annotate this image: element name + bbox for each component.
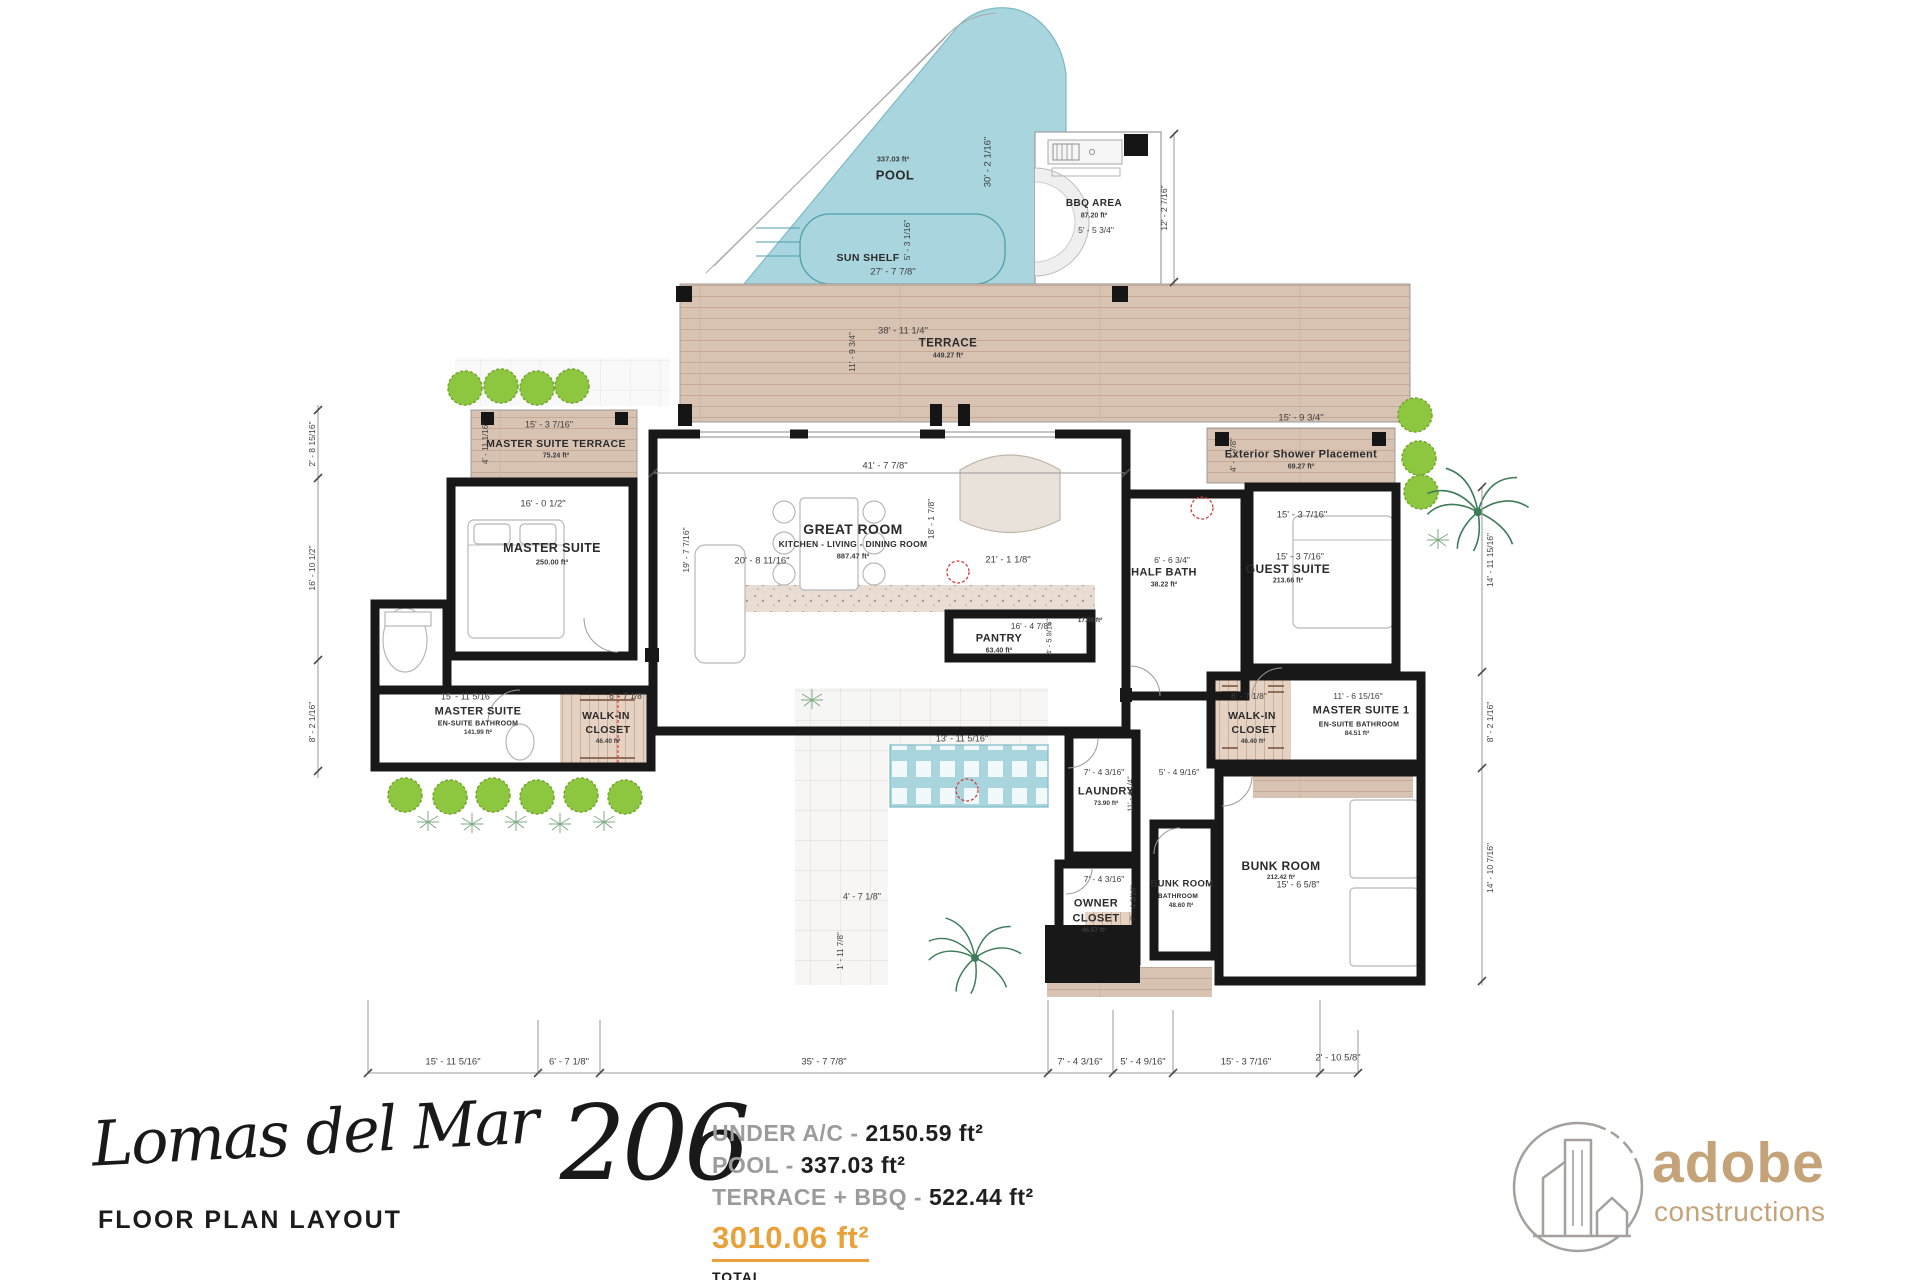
ms1-bath-label: MASTER SUITE 1 (1313, 706, 1410, 717)
project-title: Lomas del Mar 206 (92, 1096, 746, 1187)
dim-bunk-width: 15' - 6 5/8" (1277, 881, 1320, 890)
wic-right-label-1: WALK-IN (1228, 711, 1276, 722)
stat-pool-value: 337.03 ft² (801, 1152, 906, 1178)
dim-bbq-width: 5' - 5 3/4" (1078, 226, 1114, 235)
wic-right-label-2: CLOSET (1232, 725, 1277, 736)
dim-ext-shower-width: 15' - 9 3/4" (1278, 413, 1323, 423)
dim-left-top: 2' - 8 15/16" (308, 421, 317, 466)
terrace-label: TERRACE (919, 338, 977, 350)
stat-under-ac: UNDER A/C - 2150.59 ft² (712, 1120, 1034, 1147)
stat-terrace-bbq-value: 522.44 ft² (929, 1184, 1034, 1210)
dim-great-room-width: 41' - 7 7/8" (862, 461, 907, 471)
bunk-bath-area-label: 48.60 ft² (1169, 903, 1194, 910)
dim-master-suite-width: 16' - 0 1/2" (520, 499, 565, 509)
master-suite-label: MASTER SUITE (503, 542, 601, 555)
bunk-bath-label: BUNK ROOM (1150, 879, 1213, 889)
dim-guest-mid: 15' - 3 7/16" (1276, 553, 1324, 562)
owner-closet-label-2: CLOSET (1072, 914, 1119, 925)
pool-label: POOL (876, 169, 914, 182)
brand-logo-icon (1503, 1112, 1653, 1262)
brand-tagline: constructions (1654, 1196, 1825, 1228)
dim-ms1-bath-width: 11' - 6 15/16" (1333, 692, 1382, 701)
ms1-bath-area-label: 84.51 ft² (1345, 731, 1370, 738)
wic-left-label-2: CLOSET (586, 725, 631, 736)
stat-under-ac-value: 2150.59 ft² (865, 1120, 983, 1146)
stat-total-value: 3010.06 ft² (712, 1220, 869, 1262)
guest-suite-area-label: 213.66 ft² (1273, 578, 1303, 585)
dim-great-room-mid: 18' - 1 7/8" (927, 499, 936, 540)
dim-courtyard-width: 13' - 11 5/16" (936, 735, 988, 744)
dim-laundry-width: 7' - 4 3/16" (1084, 768, 1125, 777)
dim-guest-top: 15' - 3 7/16" (1277, 510, 1328, 520)
brand-name: adobe (1652, 1130, 1825, 1196)
dim-wic-left-width: 6' - 7 1/8" (609, 692, 645, 701)
bbq-area-label: 87.20 ft² (1081, 213, 1107, 220)
dim-great-room-left: 20' - 8 11/16" (734, 556, 789, 566)
half-bath-area-label: 38.22 ft² (1151, 582, 1177, 589)
sun-shelf-label: SUN SHELF (836, 253, 899, 264)
wic-right-area-label: 46.40 ft² (1241, 739, 1266, 746)
pantry-area-label: 63.40 ft² (986, 648, 1012, 655)
dim-half-bath-width: 6' - 6 3/4" (1154, 556, 1190, 565)
dim-bottom-4: 7' - 4 3/16" (1057, 1057, 1102, 1067)
area-stats: UNDER A/C - 2150.59 ft² POOL - 337.03 ft… (712, 1120, 1034, 1280)
wic-left-area-label: 46.40 ft² (596, 739, 621, 746)
dim-left-bot: 8' - 2 1/16" (308, 702, 317, 743)
page-subtitle: FLOOR PLAN LAYOUT (98, 1206, 402, 1235)
dim-bottom-3: 35' - 7 7/8" (801, 1057, 846, 1067)
dim-terrace-height: 11' - 9 3/4" (848, 332, 857, 372)
exterior-shower-label: Exterior Shower Placement (1225, 450, 1377, 461)
pool-area-label: 337.03 ft² (877, 155, 910, 163)
project-title-words: Lomas del Mar (90, 1084, 540, 1198)
dim-great-room-right: 21' - 1 1/8" (985, 555, 1030, 565)
stat-total-label: TOTAL (712, 1269, 1034, 1280)
terrace-area-label: 449.27 ft² (933, 353, 963, 360)
stat-pool-label: POOL - (712, 1152, 801, 1178)
window-openings (700, 427, 1055, 441)
pool-shape (706, 8, 1066, 284)
dim-pool-width: 27' - 7 7/8" (870, 267, 915, 277)
dim-pantry-height: 4' - 5 9/16" (1045, 619, 1053, 655)
dim-master-terrace-width: 15' - 3 7/16" (525, 421, 573, 430)
floor-plan-drawing (0, 0, 1920, 1280)
dim-master-suite-height: 19' - 7 7/16" (682, 527, 691, 572)
dim-wic-right-width: 6' - 7 1/8" (1231, 692, 1267, 701)
dim-sun-shelf-height: 5' - 3 1/16" (903, 220, 912, 261)
dim-right-top: 14' - 11 15/16" (1486, 533, 1495, 587)
master-bath-sub-label: EN-SUITE BATHROOM (438, 721, 518, 728)
guest-suite-label: GUEST SUITE (1246, 563, 1330, 575)
bbq-label: BBQ AREA (1066, 199, 1122, 209)
ms1-bath-sub-label: EN-SUITE BATHROOM (1319, 722, 1399, 729)
master-suite-area-label: 250.00 ft² (536, 558, 569, 566)
dim-bottom-1: 15' - 11 5/16" (425, 1057, 480, 1067)
pantry-label: PANTRY (976, 634, 1022, 645)
stat-terrace-bbq: TERRACE + BBQ - 522.44 ft² (712, 1184, 1034, 1211)
dim-laundry-height: 11' - 4 1/4" (1126, 776, 1134, 811)
dim-ext-shower-height: 4' - 7 7/8" (1230, 438, 1238, 472)
great-room-sub-label: KITCHEN - LIVING - DINING ROOM (779, 540, 928, 549)
bunk-room-label: BUNK ROOM (1242, 860, 1321, 872)
dim-owner-width: 7' - 4 3/16" (1084, 875, 1125, 884)
dim-bottom-5: 5' - 4 9/16" (1120, 1057, 1165, 1067)
wic-left-label-1: WALK-IN (582, 711, 630, 722)
master-bath-label: MASTER SUITE (435, 707, 522, 718)
master-terrace-label: MASTER SUITE TERRACE (486, 439, 626, 450)
dim-hall-width: 5' - 4 9/16" (1159, 768, 1200, 777)
dim-bbq-height: 12' - 2 7/16" (1160, 185, 1169, 230)
laundry-area-label: 73.90 ft² (1094, 801, 1119, 808)
dim-left-mid: 16' - 10 1/2" (308, 545, 317, 590)
dim-path-width: 4' - 7 1/8" (843, 893, 881, 902)
dim-master-terrace-height: 4' - 11 1/16" (482, 422, 490, 464)
master-bath-area-label: 141.99 ft² (464, 730, 492, 737)
dim-terrace-width: 38' - 11 1/4" (878, 326, 928, 336)
stat-terrace-bbq-label: TERRACE + BBQ - (712, 1184, 929, 1210)
water-feature-shape (890, 745, 1048, 807)
great-room-area-label: 887.47 ft² (837, 552, 870, 560)
dim-bottom-2: 6' - 7 1/8" (549, 1057, 589, 1067)
great-room-label: GREAT ROOM (803, 522, 902, 536)
dim-right-bot: 14' - 10 7/16" (1486, 843, 1495, 893)
bunk-bath-sub-label: BATHROOM (1158, 894, 1198, 901)
dim-bottom-7: 2' - 10 5/8" (1315, 1053, 1360, 1063)
dim-pool-height: 30' - 2 1/16" (983, 137, 993, 188)
stat-pool: POOL - 337.03 ft² (712, 1152, 1034, 1179)
dim-right-mid: 8' - 2 1/16" (1486, 702, 1495, 743)
exterior-shower-area-label: 69.27 ft² (1288, 464, 1314, 471)
dim-path-height: 1' - 11 7/8" (837, 932, 845, 970)
owner-closet-label-1: OWNER (1074, 899, 1118, 910)
dim-master-bath-width: 15' - 11 5/16" (441, 693, 493, 702)
stat-under-ac-label: UNDER A/C - (712, 1120, 865, 1146)
kitchen-counter-area-label: 17.08 ft² (1078, 618, 1103, 625)
floor-plan-sheet: 337.03 ft² POOL SUN SHELF BBQ AREA 87.20… (0, 0, 1920, 1280)
half-bath-label: HALF BATH (1131, 568, 1197, 579)
dim-bottom-6: 15' - 3 7/16" (1221, 1057, 1272, 1067)
dim-owner-height: 7' - 4 3/16" (1129, 885, 1137, 921)
master-terrace-area-label: 75.24 ft² (543, 453, 569, 460)
owner-closet-area-label: 46.57 ft² (1082, 928, 1107, 935)
